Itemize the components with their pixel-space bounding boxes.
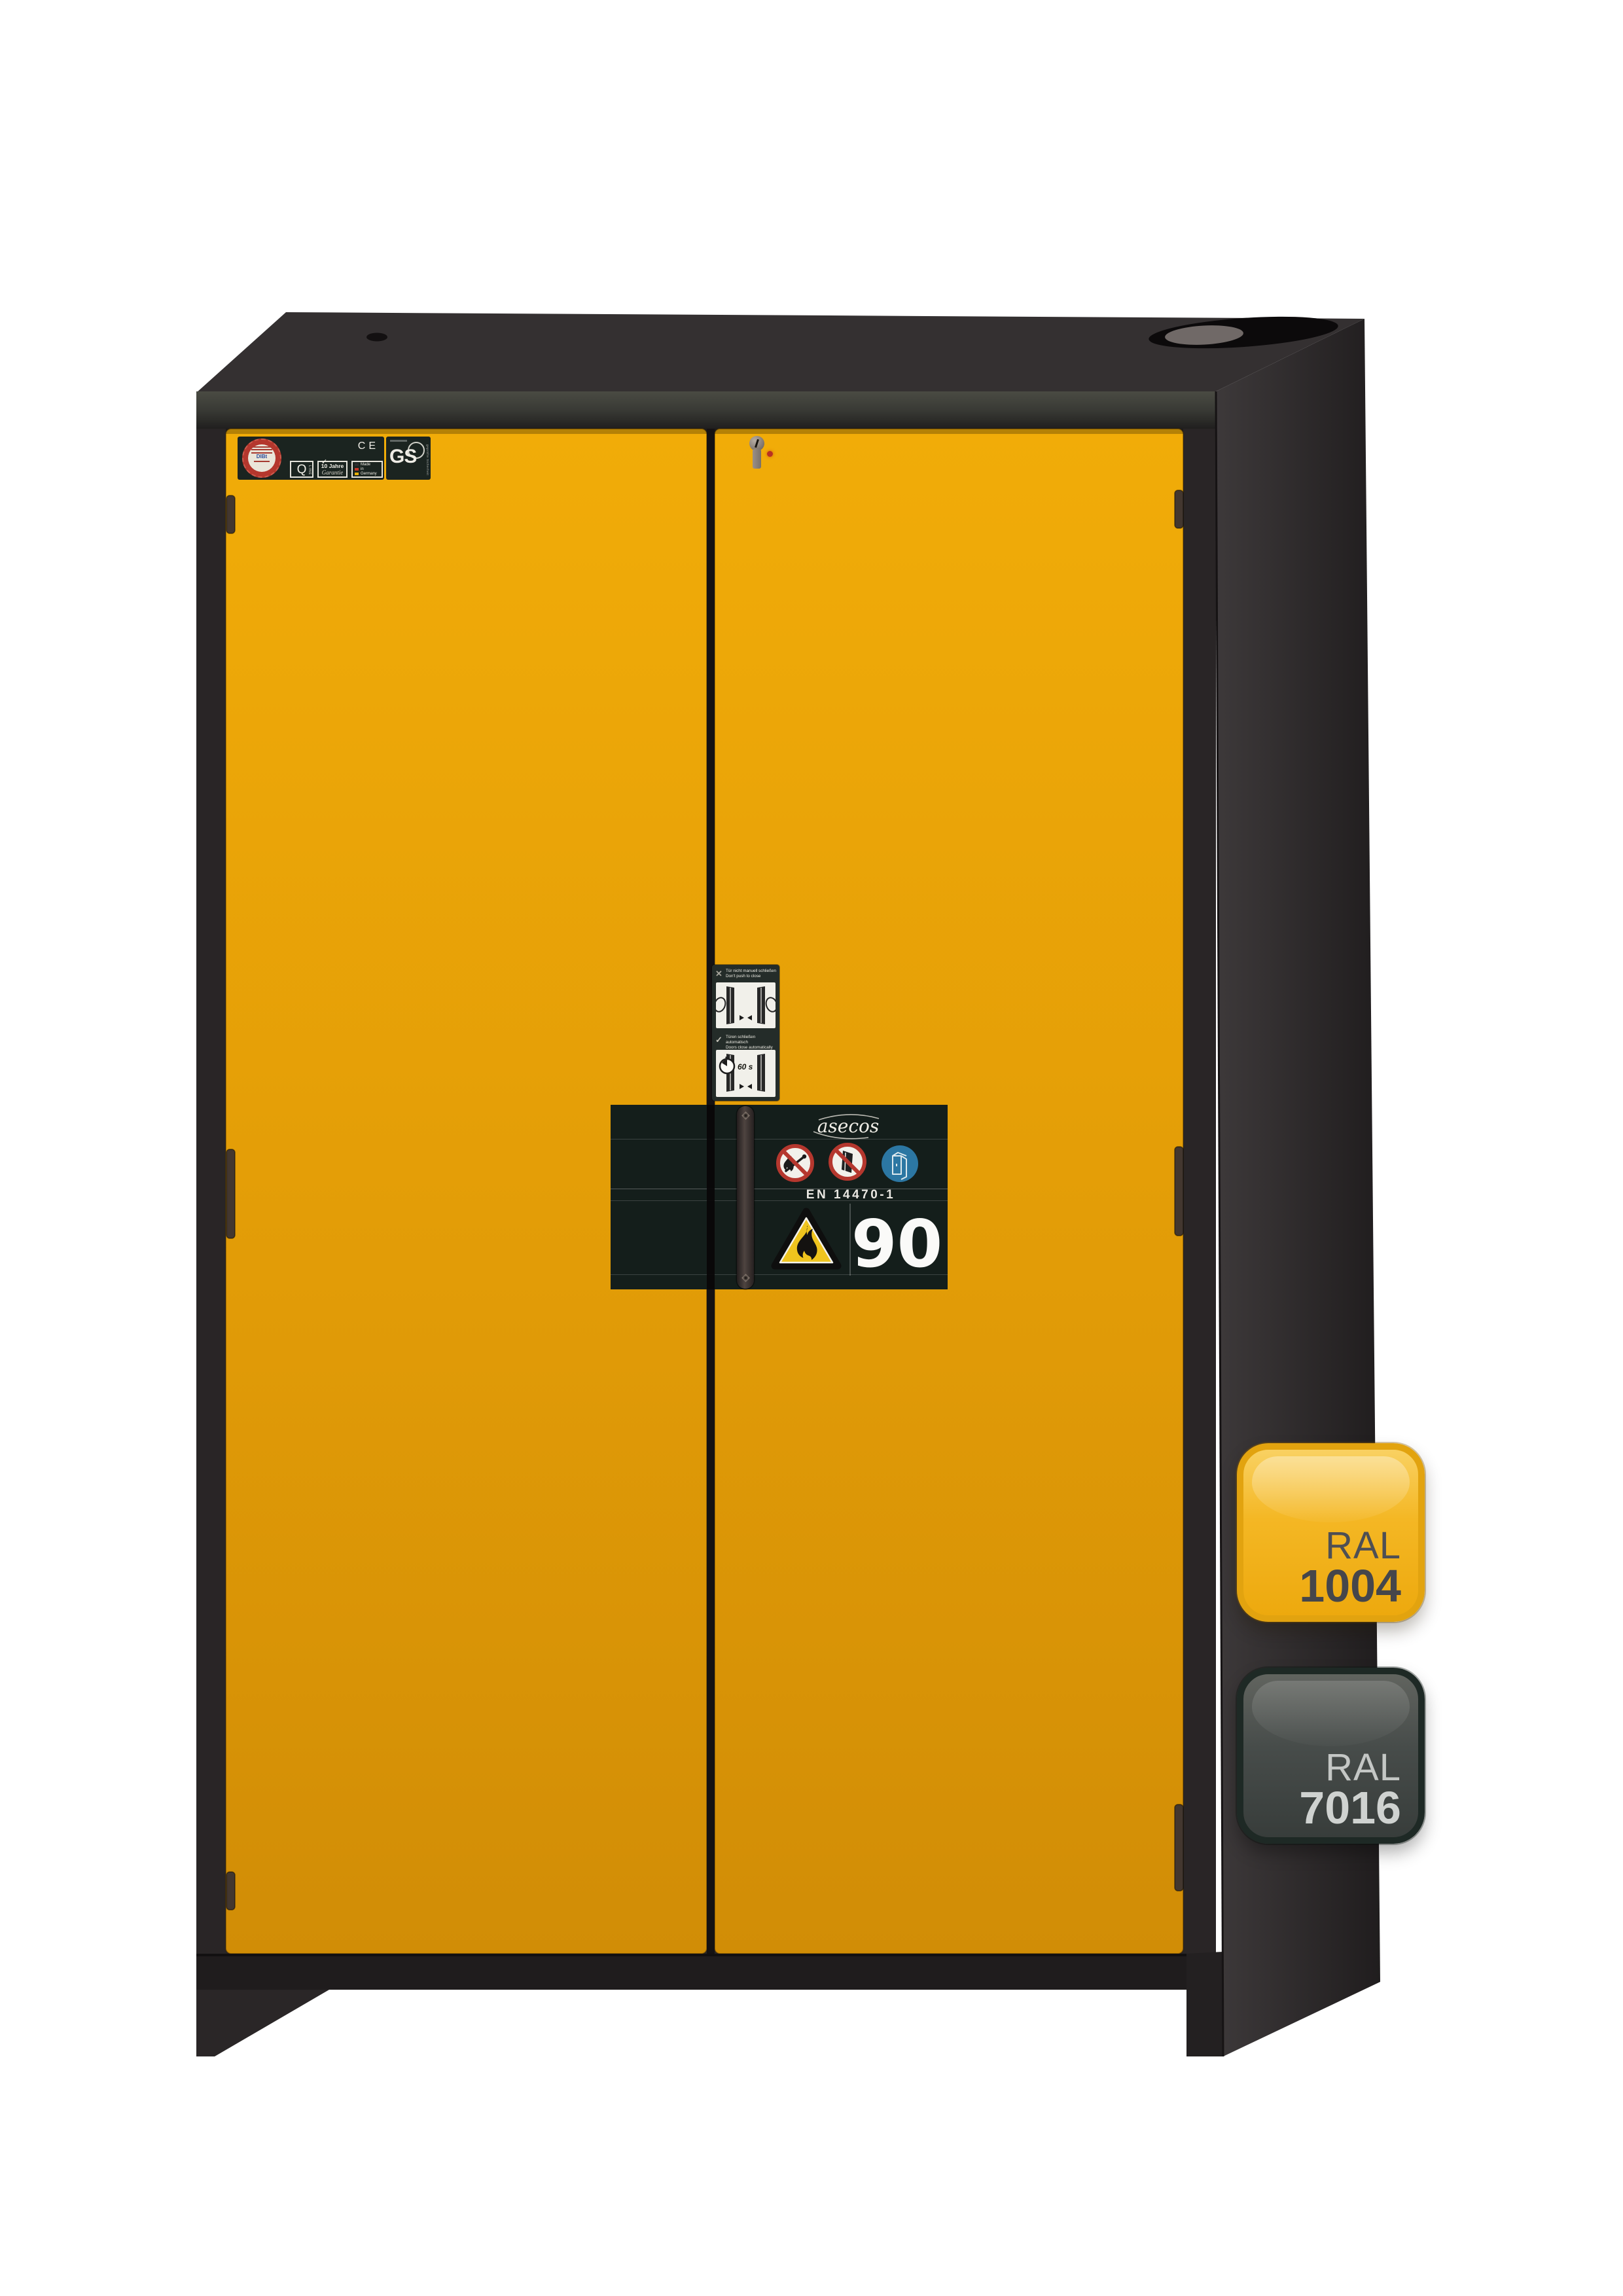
ral-code: 1004 <box>1299 1564 1401 1608</box>
approval-seal-icon: DIBt <box>242 439 281 478</box>
auto-close-caption: Türen schließen automatisch Doors close … <box>726 1035 778 1050</box>
hinge-icon <box>1175 490 1183 528</box>
gs-subtitle: geprüfte Sicherheit <box>426 444 429 475</box>
q-line-letter: Q <box>297 463 307 476</box>
warranty-word: Garantie <box>322 469 344 476</box>
swatch-gloss <box>1252 1456 1409 1522</box>
ral-label: RAL <box>1299 1528 1401 1564</box>
standard-reference: EN 14470-1 <box>787 1188 914 1202</box>
approval-seal-face: DIBt <box>248 444 276 472</box>
dont-push-pictogram <box>716 982 776 1028</box>
gs-mark: GS <box>389 446 416 468</box>
handle-screw-icon <box>741 1111 750 1120</box>
door-handle <box>737 1106 754 1289</box>
lock-stem <box>753 449 761 469</box>
fire-rating-value: 90 <box>851 1213 933 1275</box>
mig-word: Made <box>361 463 370 467</box>
mig-word: Germany <box>361 472 377 476</box>
label-divider <box>849 1204 851 1276</box>
seal-authority: DIBt <box>248 454 276 459</box>
check-icon: ✓ <box>321 457 327 466</box>
hinge-icon <box>1175 1147 1183 1236</box>
swatch-gloss <box>1252 1681 1409 1746</box>
gs-fine-print <box>390 440 407 442</box>
top-vent-hole-small <box>366 333 387 342</box>
handle-screw-icon <box>741 1274 750 1282</box>
door-color-swatch: RAL 1004 <box>1237 1443 1425 1622</box>
cross-icon: ✕ <box>715 969 722 979</box>
brand-logo: asecos <box>804 1111 893 1141</box>
flag-chip-red <box>355 468 359 471</box>
check-icon: ✓ <box>715 1035 722 1045</box>
flag-chip-black <box>355 463 359 466</box>
flammable-warning-icon <box>770 1206 843 1270</box>
no-open-flames-icon <box>778 1146 812 1180</box>
made-in-germany-badge: Made in Germany <box>351 461 383 478</box>
door-top-shadow <box>226 429 1183 434</box>
brand-name: asecos <box>817 1115 880 1137</box>
keyway-slot <box>755 439 759 448</box>
doors-hands-icon <box>716 982 776 1028</box>
no-open-door-icon <box>830 1145 865 1179</box>
q-line-badge: Q LINE <box>290 461 313 478</box>
ce-mark: CE <box>358 440 379 452</box>
right-leg <box>1186 1952 1223 2056</box>
keep-cabinet-closed-icon <box>882 1145 918 1182</box>
hinge-icon <box>226 1149 235 1238</box>
cabinet-top <box>196 312 1364 393</box>
plinth-shadow-line <box>196 1954 1186 1956</box>
gs-certification-label: GS geprüfte Sicherheit <box>386 437 431 480</box>
quality-certification-label: DIBt CE Q LINE ✓ 10 Jahre Garantie Made … <box>238 437 384 480</box>
safety-pictograms <box>776 1143 921 1183</box>
q-line-word: LINE <box>308 465 312 475</box>
front-top-edge <box>196 391 1216 429</box>
auto-close-sticker: ✕ Tür nicht manuell schließen Don't push… <box>712 965 779 1101</box>
left-leg <box>196 1990 329 2056</box>
auto-close-de: Türen schließen automatisch <box>726 1035 778 1045</box>
mig-word: in <box>361 467 364 471</box>
hinge-icon <box>226 1872 235 1910</box>
door-gap-overlay <box>707 1105 715 1289</box>
lock-status-dot <box>767 451 773 457</box>
body-color-swatch: RAL 7016 <box>1237 1668 1425 1844</box>
ral-label: RAL <box>1299 1749 1401 1785</box>
type-approval-label: asecos <box>611 1105 948 1289</box>
hinge-icon <box>1175 1804 1183 1891</box>
dont-push-de: Tür nicht manuell schließen <box>726 969 778 974</box>
dont-push-en: Don't push to close <box>726 974 778 979</box>
product-image: DIBt CE Q LINE ✓ 10 Jahre Garantie Made … <box>0 0 1623 2296</box>
hinge-icon <box>226 495 235 533</box>
dont-push-caption: Tür nicht manuell schließen Don't push t… <box>726 969 778 979</box>
doors-timer-icon: 60 s <box>716 1050 776 1097</box>
auto-close-pictogram: 60 s <box>716 1050 776 1097</box>
flag-chip-gold <box>355 473 359 475</box>
plinth <box>196 1954 1186 1990</box>
warranty-badge: ✓ 10 Jahre Garantie <box>317 461 348 478</box>
ral-code: 7016 <box>1299 1786 1401 1830</box>
close-time: 60 s <box>738 1062 753 1071</box>
